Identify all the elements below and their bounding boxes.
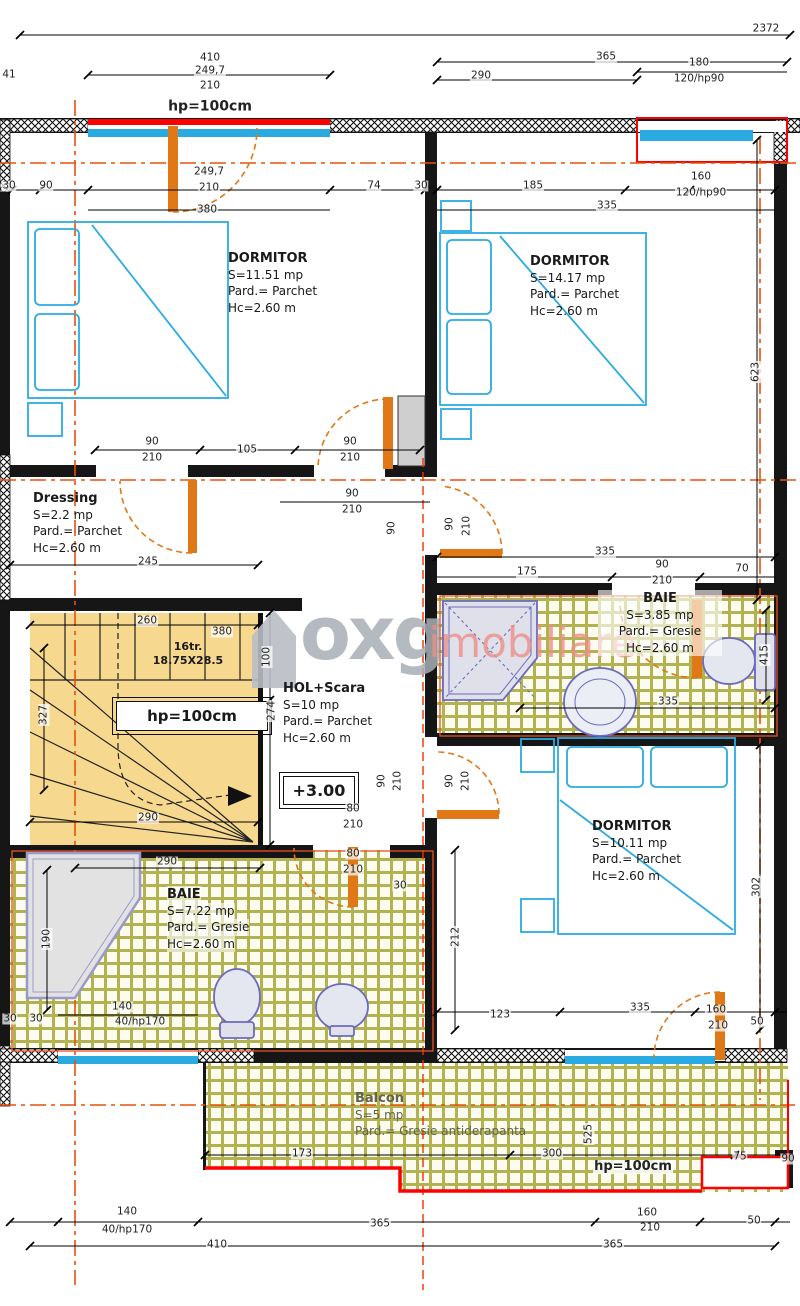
dimension-label: 90 [654,559,669,570]
dimension-label: 74 [366,180,381,191]
dimension-label: 210 [342,864,364,875]
dimension-label: 30 [413,180,428,191]
dimension-label: 175 [516,566,538,577]
dimension-label: 365 [595,51,617,62]
dimension-label: 90 [38,180,53,191]
dimension-label: 30 [392,880,407,891]
floor-plan: oxg imobiliare DORMITOR S=11.51 mp Pard.… [0,0,800,1306]
dimension-label: 180 [688,57,710,68]
dimension-label: 173 [291,1148,313,1159]
dimension-label: 80 [345,848,360,859]
dimension-label: 90 [376,773,387,788]
dimension-label: 335 [629,1002,651,1013]
dimension-label: 249,7 [194,65,226,76]
dimension-label: 415 [759,644,770,666]
dimension-label: 140 [116,1206,138,1217]
dimension-label: 50 [746,1215,761,1226]
dimension-label: 365 [602,1239,624,1250]
dimension-label: 210 [342,819,364,830]
dimension-label: 123 [489,1009,511,1020]
dimension-label: 335 [594,546,616,557]
dimension-label: 160 [705,1004,727,1015]
dimension-label: 90 [386,520,397,535]
dimension-label: 70 [734,563,749,574]
dimension-label: 302 [751,876,762,898]
dimension-label: 2372 [752,23,781,34]
dimension-label: 290 [137,812,159,823]
dimension-label: 623 [750,361,761,383]
dimension-label: 290 [470,70,492,81]
dimension-label: 210 [639,1222,661,1233]
dimension-labels-layer: 237241410249,7210hp=100cm365290180120/hp… [0,0,800,1306]
dimension-label: 290 [156,856,178,867]
dimension-label: 185 [522,180,544,191]
dimension-label: 210 [651,575,673,586]
dimension-label: 210 [341,504,363,515]
dimension-label: 160 [636,1207,658,1218]
dimension-label: 90 [444,516,455,531]
dimension-label: 90 [444,773,455,788]
dimension-label: 380 [211,626,233,637]
dimension-label: 212 [450,926,461,948]
dimension-label: 245 [137,556,159,567]
dimension-label: 249,7 [193,166,225,177]
dimension-label: 365 [369,1218,391,1229]
dimension-label: 90 [344,488,359,499]
dimension-label: 260 [136,615,158,626]
dimension-label: 410 [206,1239,228,1250]
dimension-label: 30 [2,1013,17,1024]
dimension-label: 210 [392,770,403,792]
dimension-label: 274 [266,700,277,722]
dimension-label: 210 [199,80,221,91]
dimension-label: 300 [541,1148,563,1159]
dimension-label: 80 [345,803,360,814]
dimension-label: 90 [342,436,357,447]
dimension-label: 30 [1,180,16,191]
dimension-label: 335 [657,696,679,707]
dimension-label: 525 [583,1123,594,1145]
dimension-label: 50 [749,1016,764,1027]
dimension-label: 105 [236,444,258,455]
dimension-label: 100 [261,646,272,668]
dimension-label: 210 [141,452,163,463]
dimension-label: 41 [1,69,16,80]
dimension-label: 160 [690,171,712,182]
dimension-label: 190 [41,928,52,950]
dimension-label: 40/hp170 [101,1224,153,1235]
dimension-label: hp=100cm [593,1160,673,1174]
dimension-label: 90 [780,1153,795,1164]
dimension-label: 90 [144,436,159,447]
dimension-label: 410 [199,52,221,63]
dimension-label: 75 [732,1151,747,1162]
dimension-label: 210 [707,1020,729,1031]
dimension-label: 140 [111,1001,133,1012]
dimension-label: 210 [460,770,471,792]
dimension-label: 335 [596,200,618,211]
dimension-label: 210 [198,182,220,193]
dimension-label: 120/hp90 [675,187,727,198]
dimension-label: hp=100cm [167,100,253,115]
dimension-label: 210 [339,452,361,463]
dimension-label: 40/hp170 [114,1016,166,1027]
dimension-label: 210 [461,515,472,537]
dimension-label: 380 [196,204,218,215]
dimension-label: 30 [28,1013,43,1024]
dimension-label: 327 [38,704,49,726]
dimension-label: 120/hp90 [673,73,725,84]
